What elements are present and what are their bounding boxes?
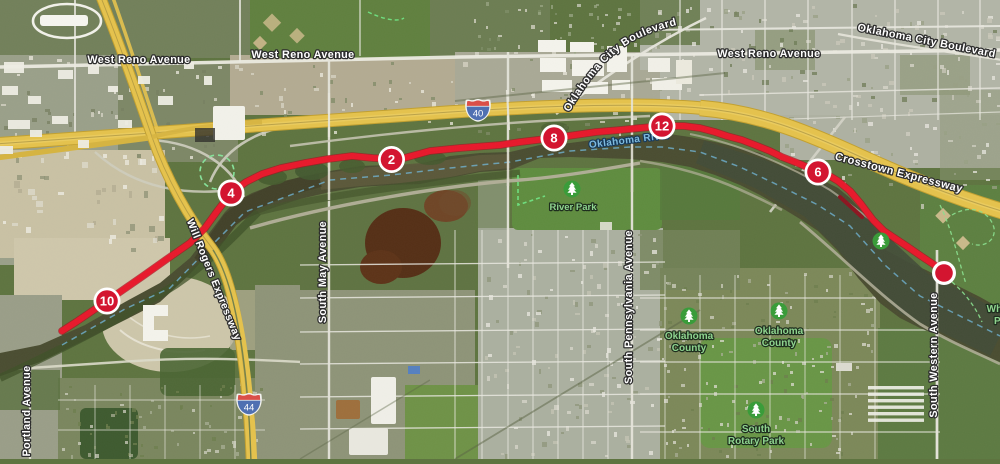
svg-text:Par: Par [994,316,1000,327]
svg-text:West Reno Avenue: West Reno Avenue [87,54,190,66]
svg-text:South Pennsylvania Avenue: South Pennsylvania Avenue [623,230,635,384]
svg-text:40: 40 [473,109,484,120]
svg-text:County: County [672,343,707,354]
svg-text:Portland Avenue: Portland Avenue [21,366,33,457]
svg-text:12: 12 [655,118,669,133]
svg-text:4: 4 [227,185,235,200]
svg-text:44: 44 [244,403,255,414]
svg-text:River Park: River Park [549,202,597,213]
svg-text:West Reno Avenue: West Reno Avenue [251,49,354,61]
svg-text:South May Avenue: South May Avenue [317,221,329,323]
svg-text:2: 2 [388,152,395,167]
svg-text:South Western Avenue: South Western Avenue [928,292,940,417]
svg-text:10: 10 [100,293,114,308]
svg-text:6: 6 [814,164,821,179]
svg-text:Rotary Park: Rotary Park [728,436,785,447]
svg-text:South: South [742,424,770,435]
svg-text:8: 8 [550,130,557,145]
svg-text:Oklahoma: Oklahoma [755,326,804,337]
svg-text:County: County [762,338,797,349]
svg-text:Whee: Whee [987,304,1000,315]
svg-text:Oklahoma: Oklahoma [665,331,714,342]
svg-text:West Reno Avenue: West Reno Avenue [717,48,820,60]
